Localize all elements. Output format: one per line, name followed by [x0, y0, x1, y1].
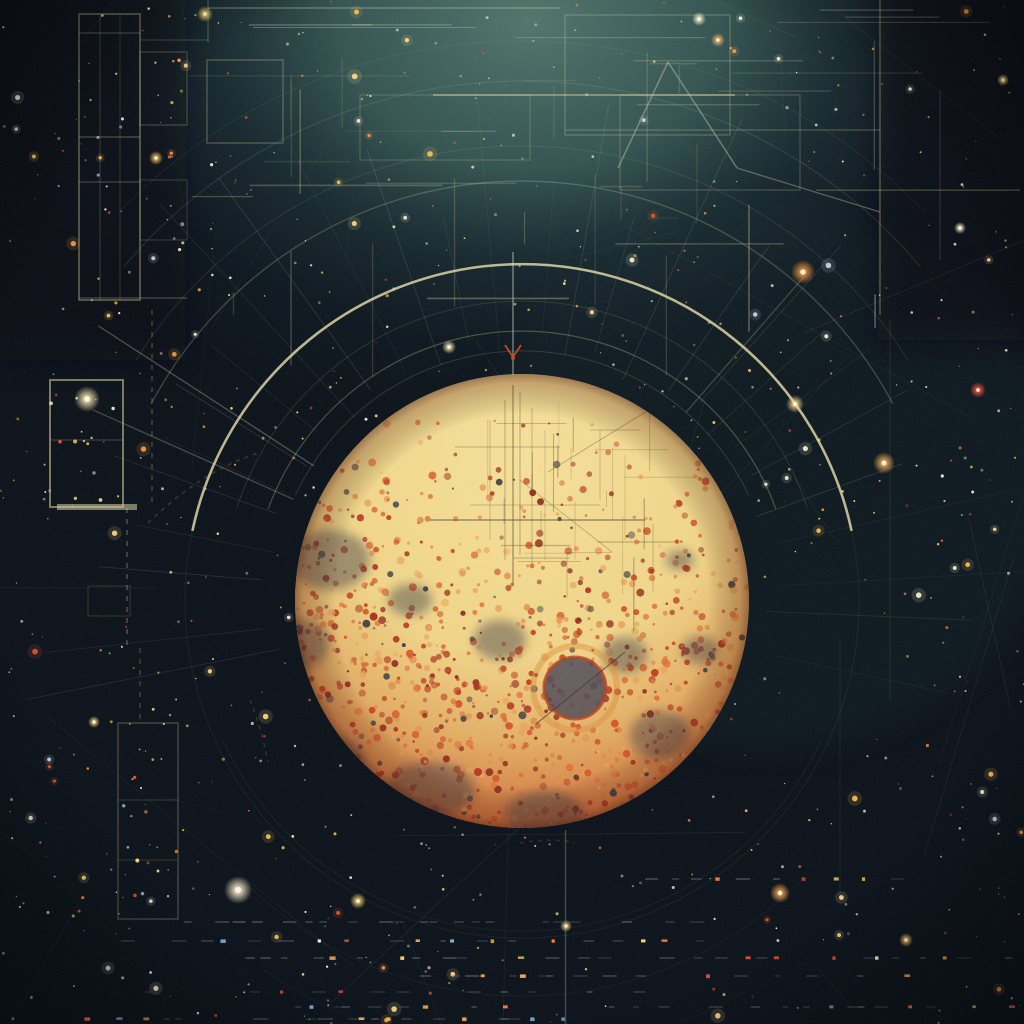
celestial-blueprint-scene: [0, 0, 1024, 1024]
artwork-stage: [0, 0, 1024, 1024]
grain-vignette-layer: [0, 0, 1024, 1024]
